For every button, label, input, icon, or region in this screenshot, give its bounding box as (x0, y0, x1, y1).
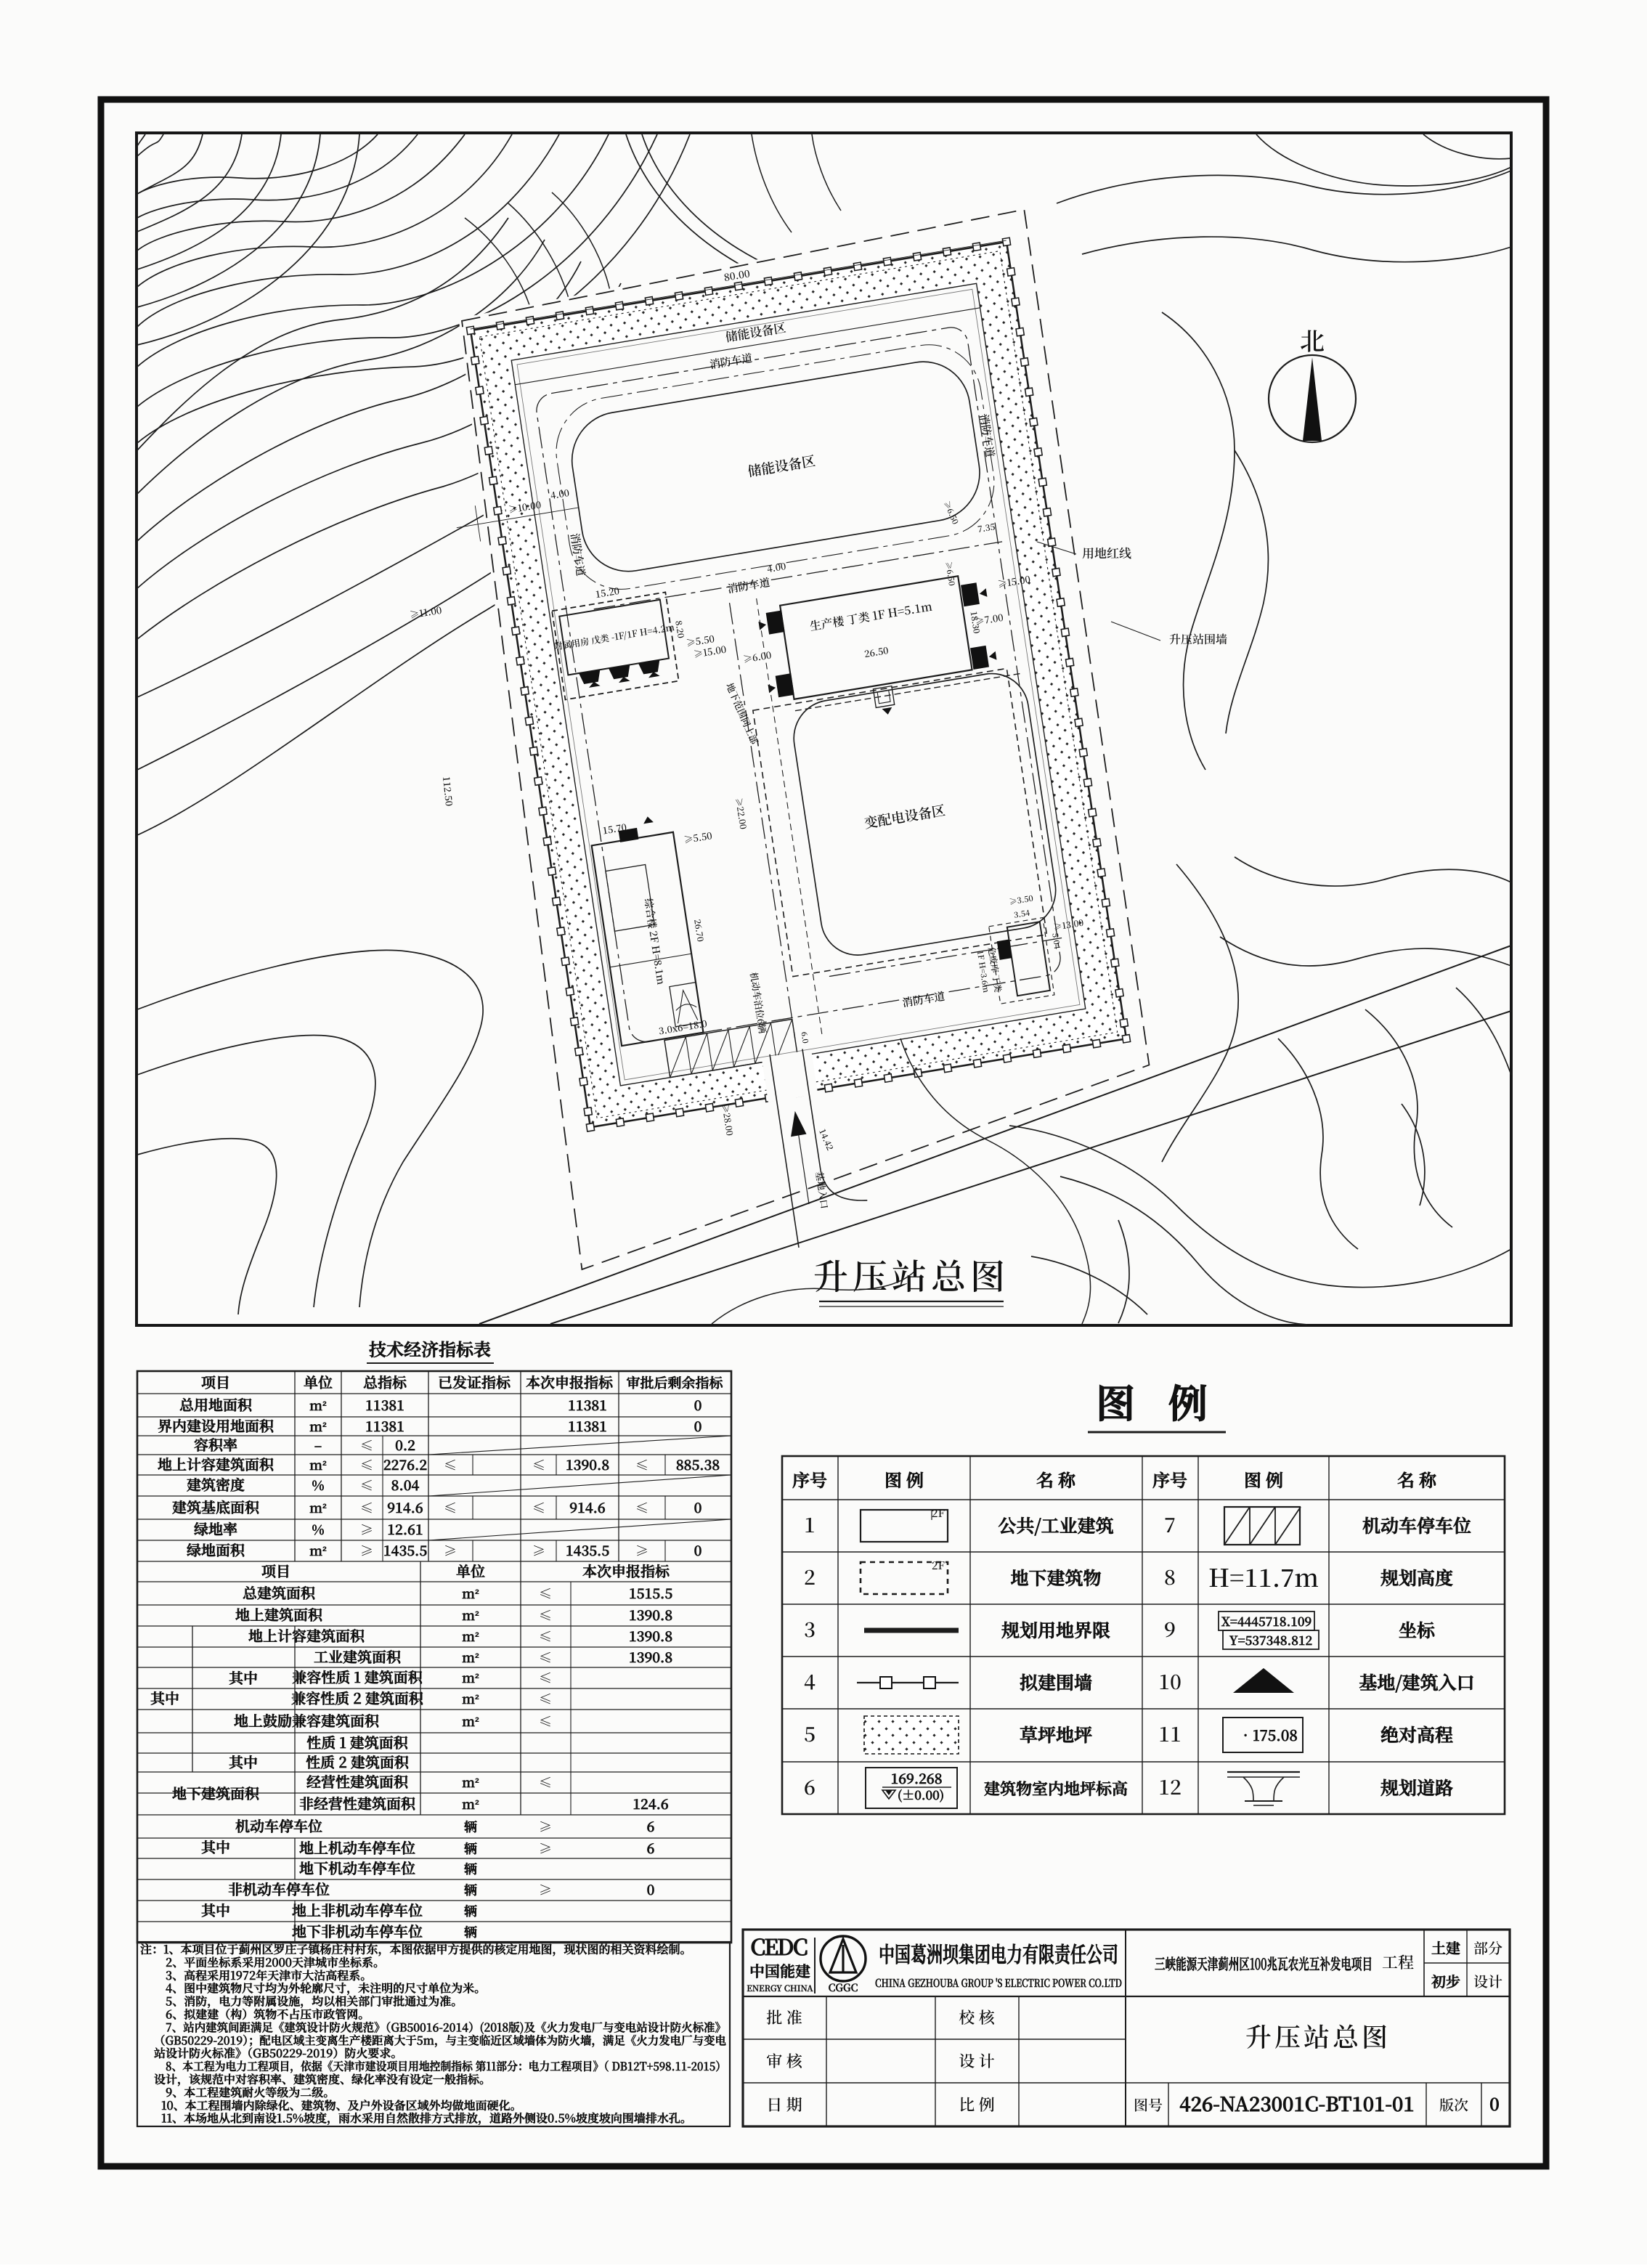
svg-text:≤: ≤ (532, 1455, 545, 1474)
svg-text:校 核: 校 核 (959, 2006, 995, 2028)
svg-text:11: 11 (1158, 1719, 1182, 1748)
svg-text:≤: ≤ (539, 1668, 552, 1687)
svg-text:12.61: 12.61 (387, 1519, 423, 1539)
svg-text:中国能建: 中国能建 (749, 1960, 810, 1982)
svg-text:中国葛洲坝集团电力有限责任公司: 中国葛洲坝集团电力有限责任公司 (879, 1937, 1118, 1969)
svg-text:1390.8: 1390.8 (566, 1455, 609, 1474)
svg-text:本次申报指标: 本次申报指标 (526, 1371, 613, 1392)
svg-text:非机动车停车位: 非机动车停车位 (228, 1878, 330, 1899)
svg-text:(±0.00): (±0.00) (898, 1785, 945, 1803)
svg-text:≤: ≤ (360, 1455, 373, 1474)
svg-text:11、本场地从北到南设1.5%坡度，雨水采用自然散排方式排放: 11、本场地从北到南设1.5%坡度，雨水采用自然散排方式排放，道路外侧设0.5%… (161, 2110, 692, 2126)
svg-text:坐标: 坐标 (1399, 1617, 1435, 1643)
svg-text:序号: 序号 (1152, 1466, 1187, 1492)
svg-text:兼容性质 2 建筑面积: 兼容性质 2 建筑面积 (291, 1687, 423, 1708)
svg-text:设 计: 设 计 (959, 2049, 995, 2072)
svg-text:≤: ≤ (532, 1498, 545, 1517)
svg-text:ENERGY CHINA: ENERGY CHINA (747, 1983, 813, 1994)
svg-text:m²: m² (462, 1668, 479, 1687)
svg-text:m²: m² (462, 1795, 479, 1813)
svg-text:绿地面积: 绿地面积 (187, 1539, 245, 1560)
svg-text:设计: 设计 (1473, 1970, 1502, 1991)
svg-text:0: 0 (1489, 2090, 1500, 2115)
svg-text:地下建筑面积: 地下建筑面积 (172, 1782, 259, 1803)
svg-text:规划道路: 规划道路 (1380, 1774, 1453, 1800)
svg-text:序号: 序号 (792, 1466, 827, 1492)
svg-text:CEDC: CEDC (750, 1930, 807, 1962)
svg-text:审批后剩余指标: 审批后剩余指标 (626, 1373, 723, 1392)
svg-text:性质 2 建筑面积: 性质 2 建筑面积 (306, 1751, 409, 1772)
svg-text:机动车停车位: 机动车停车位 (1362, 1512, 1471, 1538)
svg-text:升压站总图: 升压站总图 (813, 1249, 1009, 1299)
svg-text:容积率: 容积率 (194, 1434, 237, 1455)
svg-text:0.2: 0.2 (395, 1435, 415, 1455)
svg-text:地上计容建筑面积: 地上计容建筑面积 (248, 1625, 365, 1646)
svg-text:0: 0 (647, 1879, 655, 1899)
svg-text:界内建设用地面积: 界内建设用地面积 (158, 1415, 274, 1436)
svg-text:≤: ≤ (539, 1773, 552, 1792)
svg-text:其中: 其中 (201, 1836, 230, 1857)
svg-text:X=4445718.109: X=4445718.109 (1221, 1611, 1312, 1630)
svg-text:≤: ≤ (539, 1712, 552, 1731)
svg-text:图 例: 图 例 (1096, 1373, 1219, 1429)
svg-text:工程: 工程 (1382, 1951, 1414, 1973)
svg-text:6: 6 (647, 1816, 655, 1836)
svg-text:地上建筑面积: 地上建筑面积 (235, 1604, 322, 1625)
svg-text:885.38: 885.38 (676, 1455, 720, 1474)
svg-text:兼容性质 1 建筑面积: 兼容性质 1 建筑面积 (292, 1666, 423, 1687)
svg-text:规划高度: 规划高度 (1380, 1564, 1453, 1590)
svg-text:•175.08: •175.08 (1238, 1724, 1298, 1745)
svg-text:12: 12 (1158, 1772, 1182, 1801)
svg-text:m²: m² (462, 1606, 479, 1625)
svg-text:≤: ≤ (360, 1498, 373, 1517)
svg-text:用地红线: 用地红线 (1082, 543, 1131, 561)
svg-text:经营性建筑面积: 经营性建筑面积 (306, 1771, 408, 1792)
svg-text:名 称: 名 称 (1036, 1466, 1076, 1492)
svg-text:≥: ≥ (635, 1541, 648, 1560)
svg-text:部分: 部分 (1473, 1937, 1502, 1958)
svg-text:公共/工业建筑: 公共/工业建筑 (998, 1512, 1113, 1538)
svg-text:8.04: 8.04 (391, 1475, 420, 1495)
svg-text:≥: ≥ (360, 1520, 373, 1539)
svg-text:地下建筑物: 地下建筑物 (1010, 1564, 1101, 1590)
svg-text:≤: ≤ (635, 1498, 648, 1517)
svg-text:m²: m² (309, 1498, 327, 1517)
svg-text:1390.8: 1390.8 (629, 1605, 672, 1625)
svg-text:地上计容建筑面积: 地上计容建筑面积 (158, 1453, 274, 1474)
svg-text:拟建围墙: 拟建围墙 (1020, 1669, 1092, 1695)
svg-text:辆: 辆 (463, 1817, 478, 1836)
svg-text:1390.8: 1390.8 (629, 1626, 672, 1646)
svg-text:北: 北 (1300, 322, 1325, 357)
svg-text:总用地面积: 总用地面积 (179, 1394, 252, 1415)
svg-text:版次: 版次 (1439, 2094, 1468, 2115)
svg-text:≥: ≥ (360, 1541, 373, 1560)
svg-text:性质 1 建筑面积: 性质 1 建筑面积 (306, 1731, 408, 1752)
svg-text:地下非机动车停车位: 地下非机动车停车位 (292, 1920, 423, 1941)
svg-text:m²: m² (309, 1455, 327, 1474)
svg-text:≤: ≤ (360, 1476, 373, 1495)
svg-text:2: 2 (804, 1562, 816, 1591)
svg-text:m²: m² (462, 1689, 479, 1708)
svg-text:11381: 11381 (365, 1395, 404, 1415)
svg-text:总指标: 总指标 (363, 1371, 407, 1392)
svg-text:其中: 其中 (229, 1751, 258, 1772)
svg-text:≤: ≤ (444, 1455, 457, 1474)
svg-text:名 称: 名 称 (1397, 1466, 1437, 1492)
svg-text:m²: m² (462, 1773, 479, 1792)
svg-text:辆: 辆 (463, 1859, 478, 1878)
svg-text:7: 7 (1164, 1510, 1176, 1539)
svg-text:已发证指标: 已发证指标 (438, 1371, 511, 1392)
svg-text:124.6: 124.6 (633, 1794, 669, 1813)
svg-text:≥: ≥ (444, 1541, 457, 1560)
svg-text:2276.2: 2276.2 (383, 1455, 427, 1474)
svg-text:CGGC: CGGC (829, 1980, 858, 1995)
svg-text:建筑基底面积: 建筑基底面积 (172, 1496, 259, 1517)
svg-text:图 例: 图 例 (1244, 1466, 1283, 1492)
svg-text:≥: ≥ (539, 1817, 552, 1836)
svg-text:1435.5: 1435.5 (566, 1540, 609, 1560)
svg-text:比 例: 比 例 (959, 2093, 995, 2115)
svg-text:总建筑面积: 总建筑面积 (243, 1582, 315, 1603)
svg-text:地下机动车停车位: 地下机动车停车位 (299, 1857, 415, 1878)
svg-text:图 例: 图 例 (884, 1466, 924, 1492)
svg-text:其中: 其中 (150, 1687, 179, 1708)
svg-text:5.04: 5.04 (1049, 932, 1063, 950)
svg-text:基地/建筑入口: 基地/建筑入口 (1359, 1669, 1474, 1695)
svg-text:项目: 项目 (261, 1560, 290, 1581)
svg-text:1515.5: 1515.5 (629, 1583, 672, 1603)
svg-text:H=11.7m: H=11.7m (1208, 1558, 1319, 1594)
svg-text:日 期: 日 期 (766, 2093, 802, 2115)
svg-text:%: % (312, 1476, 325, 1495)
svg-text:11381: 11381 (568, 1395, 607, 1415)
svg-text:m²: m² (462, 1648, 479, 1667)
svg-text:单位: 单位 (304, 1371, 333, 1392)
svg-text:项目: 项目 (201, 1371, 230, 1392)
svg-text:11381: 11381 (365, 1416, 404, 1436)
svg-text:≤: ≤ (360, 1436, 373, 1455)
svg-text:升压站总图: 升压站总图 (1245, 2017, 1391, 2054)
svg-text:机动车停车位: 机动车停车位 (235, 1815, 322, 1836)
svg-text:≤: ≤ (539, 1689, 552, 1708)
svg-text:914.6: 914.6 (569, 1497, 606, 1517)
svg-text:其中: 其中 (201, 1899, 230, 1920)
svg-text:≥: ≥ (539, 1880, 552, 1899)
svg-text:Y=537348.812: Y=537348.812 (1229, 1630, 1313, 1649)
svg-text:绿地率: 绿地率 (194, 1518, 237, 1539)
svg-text:m²: m² (462, 1584, 479, 1603)
svg-text:5: 5 (804, 1719, 816, 1748)
svg-text:6: 6 (647, 1838, 655, 1858)
svg-text:图号: 图号 (1134, 2094, 1163, 2115)
svg-text:0: 0 (694, 1416, 702, 1436)
svg-text:规划用地界限: 规划用地界限 (1001, 1617, 1110, 1643)
svg-text:≤: ≤ (539, 1584, 552, 1603)
svg-text:草坪地坪: 草坪地坪 (1020, 1721, 1092, 1747)
svg-text:–: – (314, 1436, 322, 1455)
svg-text:批 准: 批 准 (766, 2006, 802, 2028)
svg-text:m²: m² (462, 1627, 479, 1646)
svg-text:三峡能源天津蓟州区100兆瓦农光互补发电项目: 三峡能源天津蓟州区100兆瓦农光互补发电项目 (1155, 1953, 1372, 1975)
svg-text:m²: m² (309, 1541, 327, 1560)
svg-text:426-NA23001C-BT101-01: 426-NA23001C-BT101-01 (1179, 2089, 1414, 2117)
svg-text:建筑物室内地坪标高: 建筑物室内地坪标高 (984, 1777, 1128, 1800)
svg-text:辆: 辆 (463, 1922, 478, 1941)
svg-text:1: 1 (804, 1510, 816, 1539)
svg-text:CHINA GEZHOUBA GROUP 'S ELECTR: CHINA GEZHOUBA GROUP 'S ELECTRIC POWER C… (875, 1975, 1122, 1991)
svg-text:9: 9 (1164, 1614, 1176, 1643)
svg-text:绝对高程: 绝对高程 (1380, 1721, 1454, 1747)
svg-text:≤: ≤ (539, 1606, 552, 1625)
svg-text:m²: m² (309, 1417, 327, 1436)
svg-text:地上机动车停车位: 地上机动车停车位 (299, 1837, 415, 1858)
svg-text:≤: ≤ (539, 1627, 552, 1646)
svg-text:审 核: 审 核 (766, 2049, 802, 2072)
svg-text:建筑密度: 建筑密度 (187, 1474, 245, 1495)
svg-text:非经营性建筑面积: 非经营性建筑面积 (299, 1792, 415, 1813)
svg-text:≤: ≤ (444, 1498, 457, 1517)
svg-text:6.0: 6.0 (799, 1031, 812, 1044)
svg-text:本次申报指标: 本次申报指标 (582, 1560, 670, 1581)
svg-text:工业建筑面积: 工业建筑面积 (314, 1646, 401, 1667)
svg-text:升压站围墙: 升压站围墙 (1169, 630, 1227, 647)
svg-text:0: 0 (694, 1395, 702, 1415)
svg-text:8: 8 (1164, 1562, 1176, 1591)
svg-text:单位: 单位 (456, 1560, 485, 1581)
svg-text:≥: ≥ (539, 1839, 552, 1858)
svg-text:m²: m² (462, 1712, 479, 1731)
svg-text:m²: m² (309, 1396, 327, 1415)
svg-text:1435.5: 1435.5 (383, 1540, 427, 1560)
svg-text:≥: ≥ (532, 1541, 545, 1560)
svg-text:辆: 辆 (463, 1901, 478, 1920)
svg-text:10: 10 (1158, 1667, 1182, 1696)
svg-text:0: 0 (694, 1540, 702, 1560)
svg-text:≤: ≤ (635, 1455, 648, 1474)
svg-text:0: 0 (694, 1497, 702, 1517)
svg-text:914.6: 914.6 (387, 1497, 423, 1517)
svg-text:其中: 其中 (229, 1667, 258, 1688)
svg-text:11381: 11381 (568, 1416, 607, 1436)
svg-text:辆: 辆 (463, 1880, 478, 1899)
svg-text:辆: 辆 (463, 1839, 478, 1858)
svg-text:2F: 2F (932, 1558, 945, 1573)
svg-text:1390.8: 1390.8 (629, 1647, 672, 1667)
svg-text:3: 3 (804, 1614, 816, 1643)
svg-text:≤: ≤ (539, 1648, 552, 1667)
svg-text:2F: 2F (932, 1505, 945, 1521)
svg-text:土建: 土建 (1431, 1937, 1460, 1958)
svg-text:地上鼓励兼容建筑面积: 地上鼓励兼容建筑面积 (234, 1710, 379, 1731)
svg-text:初步: 初步 (1431, 1970, 1460, 1991)
svg-text:6: 6 (804, 1772, 816, 1801)
svg-text:%: % (312, 1520, 325, 1539)
svg-text:4: 4 (804, 1667, 816, 1696)
svg-text:技术经济指标表: 技术经济指标表 (368, 1336, 491, 1361)
svg-text:地上非机动车停车位: 地上非机动车停车位 (292, 1899, 423, 1920)
